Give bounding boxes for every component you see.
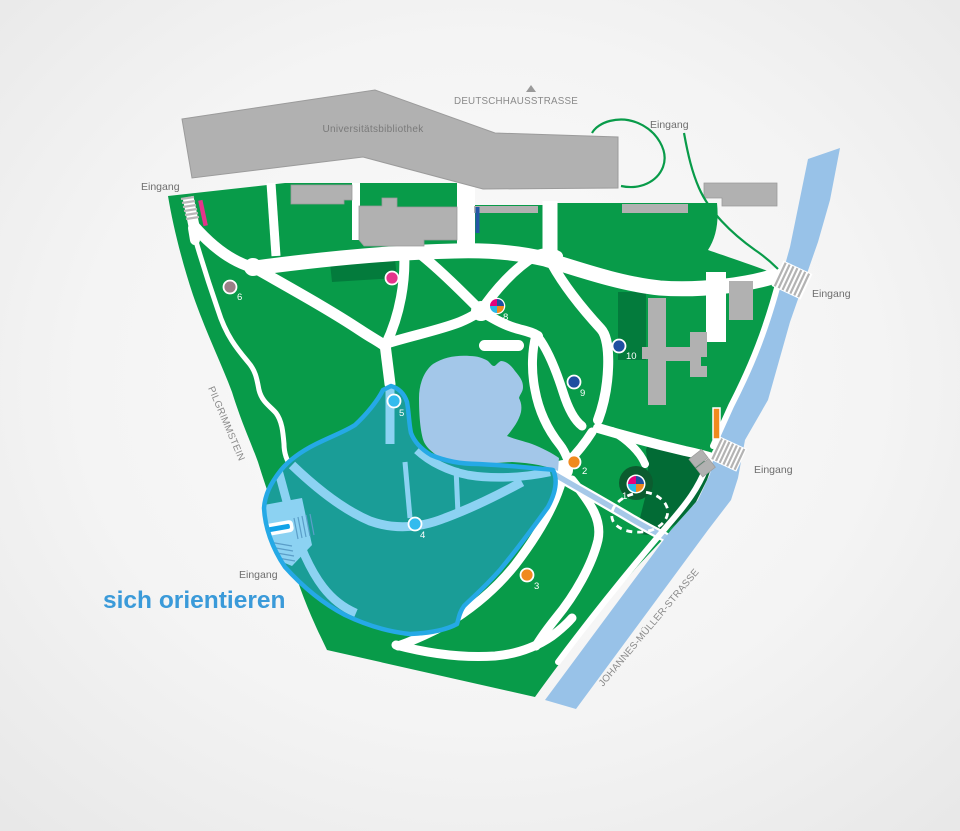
svg-text:Universitätsbibliothek: Universitätsbibliothek xyxy=(322,124,424,135)
svg-text:Eingang: Eingang xyxy=(754,464,793,476)
svg-text:4: 4 xyxy=(420,530,425,541)
svg-text:5: 5 xyxy=(399,408,404,419)
svg-text:9: 9 xyxy=(580,388,585,399)
svg-text:sich orientieren: sich orientieren xyxy=(103,587,285,614)
svg-text:1: 1 xyxy=(622,491,627,502)
svg-text:Eingang: Eingang xyxy=(650,119,689,131)
svg-text:7: 7 xyxy=(399,284,404,295)
svg-text:3: 3 xyxy=(534,581,539,592)
svg-text:2: 2 xyxy=(582,466,587,477)
svg-text:DEUTSCHHAUSSTRASSE: DEUTSCHHAUSSTRASSE xyxy=(454,96,578,107)
svg-text:Eingang: Eingang xyxy=(141,181,180,193)
svg-text:8: 8 xyxy=(503,312,508,323)
svg-text:Eingang: Eingang xyxy=(239,569,278,581)
svg-text:10: 10 xyxy=(626,351,637,362)
svg-text:Eingang: Eingang xyxy=(812,288,851,300)
svg-text:6: 6 xyxy=(237,292,242,303)
